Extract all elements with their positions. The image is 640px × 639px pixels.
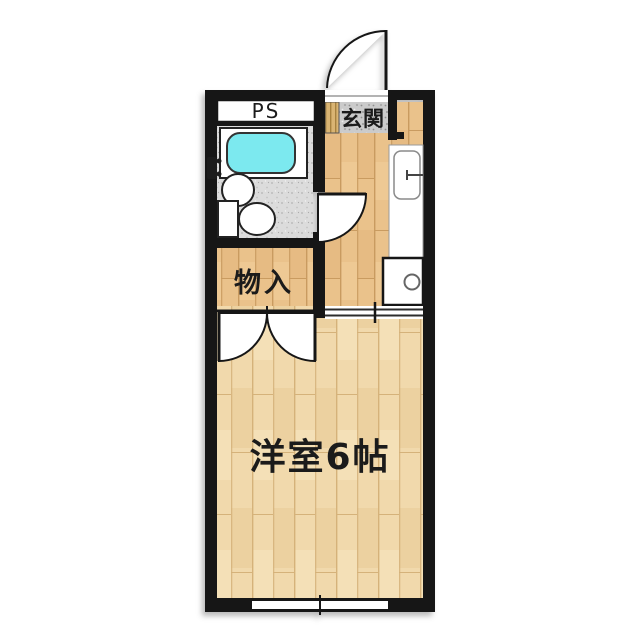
kitchen (383, 145, 423, 305)
bathtub (227, 133, 295, 173)
pipe-space-label: PS (252, 99, 281, 123)
right-wall (423, 90, 435, 612)
floorplan: PS 玄関 (205, 30, 435, 615)
closet-label: 物入 (234, 268, 294, 299)
floorplan-canvas: PS 玄関 (0, 0, 640, 639)
bath-faucet-icon (207, 157, 217, 179)
closet-top-wall (205, 238, 325, 248)
bath-faucet-knob (217, 159, 222, 164)
toilet-bowl (239, 203, 275, 235)
stove-burner-icon (405, 275, 420, 290)
bath-faucet-knob2 (217, 172, 222, 177)
jamb-stub (388, 132, 404, 139)
genkan-step (325, 102, 339, 133)
toilet-tank (218, 201, 238, 237)
entrance-label: 玄関 (341, 107, 385, 131)
main-room-label: 洋室6帖 (249, 437, 390, 478)
